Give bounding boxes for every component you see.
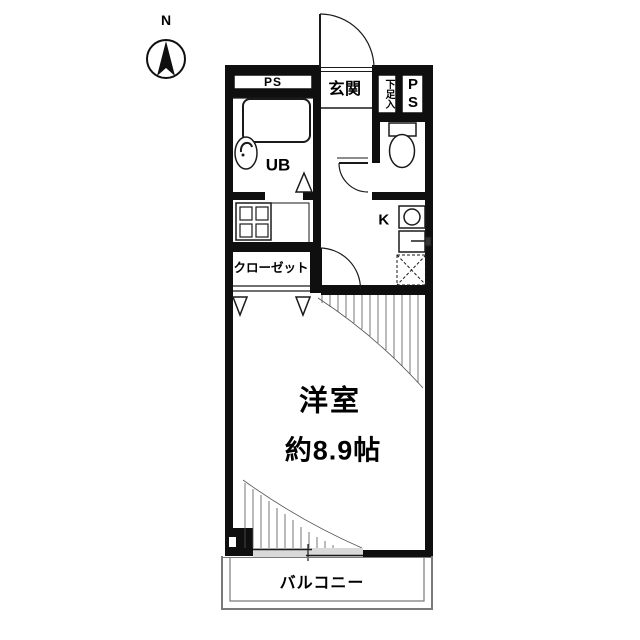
bath-folding-door-triangle (296, 173, 312, 192)
entrance-door-swing (320, 14, 374, 68)
closet-folding-door-triangle-right (296, 297, 310, 315)
floor-plan-drawing (0, 0, 640, 640)
pipe-space-label-top: PS (264, 76, 282, 88)
pipe-space-p: P (408, 76, 418, 94)
room-door-swing (320, 248, 361, 289)
pipe-space-label-right: P S (408, 76, 418, 112)
main-room-size-label: 約8.9帖 (285, 438, 382, 465)
closet-label: クローゼット (233, 262, 308, 275)
pipe-space-s: S (408, 94, 418, 112)
closet-folding-door-triangle-left (233, 297, 247, 315)
counter-edge (271, 203, 309, 242)
corner-notch (229, 537, 236, 547)
unit-bath-label: UB (266, 157, 291, 174)
north-label: N (161, 13, 171, 27)
kitchen-label: K (378, 213, 389, 228)
floor-plan: N PS 玄関 下足入 P S UB K クローゼット 洋室 約8.9帖 バルコ… (0, 0, 640, 640)
toilet-icon (389, 123, 416, 168)
north-compass-icon (147, 40, 185, 78)
balcony-window (253, 544, 363, 561)
door-swing-hatch-bottom (243, 480, 362, 548)
entrance-label: 玄関 (328, 82, 361, 98)
shoe-cabinet-label: 下足入 (383, 79, 393, 109)
toilet-door-swing (339, 163, 368, 192)
washbasin-icon (235, 137, 257, 169)
main-room-label: 洋室 (299, 388, 361, 417)
refrigerator-space-icon (397, 255, 426, 285)
bathtub-icon (243, 99, 310, 142)
washing-machine-icon (236, 203, 271, 240)
door-swing-hatch-top (318, 295, 423, 388)
stove-icon (399, 206, 425, 228)
balcony-label: バルコニー (280, 576, 365, 592)
